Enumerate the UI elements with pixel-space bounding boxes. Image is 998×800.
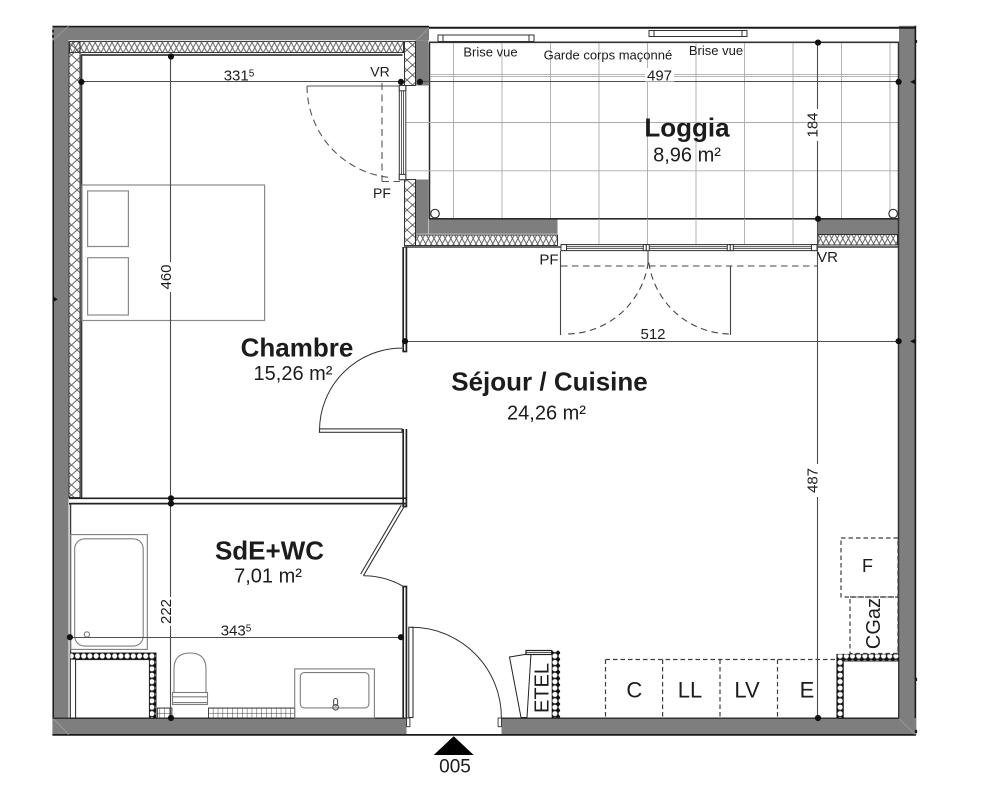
svg-text:PF: PF: [373, 185, 391, 201]
svg-text:487: 487: [805, 468, 822, 493]
svg-text:8,96 m²: 8,96 m²: [653, 145, 721, 167]
svg-text:Brise vue: Brise vue: [463, 45, 517, 60]
svg-text:ETEL: ETEL: [531, 663, 553, 713]
svg-text:24,26 m²: 24,26 m²: [507, 403, 586, 425]
svg-text:SdE+WC: SdE+WC: [215, 536, 324, 566]
svg-text:PF: PF: [539, 252, 558, 269]
svg-text:005: 005: [439, 757, 471, 778]
svg-text:Brise vue: Brise vue: [689, 43, 743, 58]
svg-text:C: C: [626, 677, 642, 702]
svg-text:E: E: [800, 677, 815, 702]
svg-text:Chambre: Chambre: [241, 333, 354, 363]
svg-text:Garde corps maçonné: Garde corps maçonné: [544, 48, 673, 63]
svg-text:CGaz: CGaz: [863, 598, 885, 649]
svg-text:497: 497: [647, 67, 672, 84]
svg-text:VR: VR: [817, 249, 838, 266]
svg-text:7,01 m²: 7,01 m²: [234, 566, 302, 588]
svg-text:LV: LV: [734, 677, 760, 702]
svg-text:VR: VR: [370, 64, 389, 80]
svg-text:184: 184: [805, 112, 822, 137]
svg-text:Loggia: Loggia: [644, 113, 730, 143]
svg-text:F: F: [862, 556, 873, 576]
svg-text:LL: LL: [678, 677, 702, 702]
svg-text:15,26 m²: 15,26 m²: [254, 363, 333, 385]
svg-text:460: 460: [158, 264, 175, 289]
svg-text:512: 512: [640, 326, 665, 343]
svg-text:Séjour / Cuisine: Séjour / Cuisine: [451, 367, 648, 397]
svg-text:222: 222: [158, 599, 175, 624]
